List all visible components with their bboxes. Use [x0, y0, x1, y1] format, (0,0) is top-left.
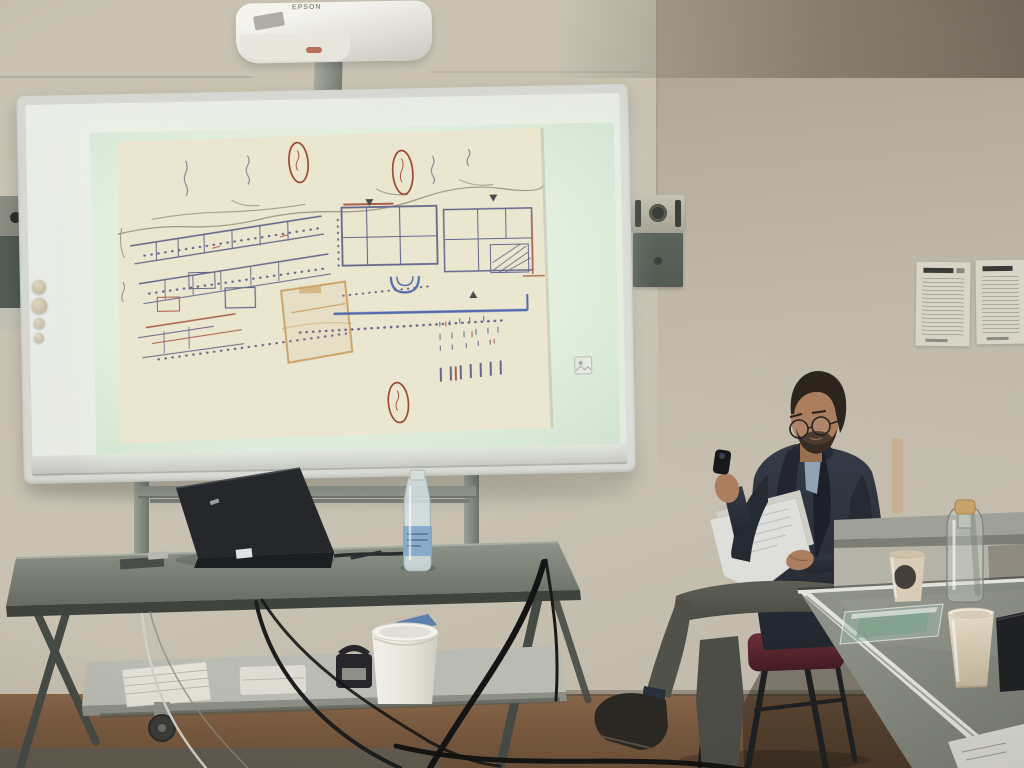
case-top-edge — [996, 614, 1024, 620]
green-sheet — [856, 610, 930, 638]
mobile-whiteboard — [16, 84, 636, 484]
table-sheen — [840, 590, 1024, 660]
laptop-cable — [334, 552, 420, 556]
board-stand-pole — [134, 468, 149, 570]
notice-header-bar — [982, 266, 1012, 271]
projector-brand-label: EPSON — [292, 4, 322, 12]
pen — [352, 552, 380, 558]
seminar-room-photo: EPSON — [0, 0, 1024, 768]
hole-punch — [336, 648, 372, 688]
folder-white-sheet — [851, 607, 938, 619]
notice-footer — [986, 337, 1008, 340]
projector-front — [240, 34, 350, 61]
dark-case — [996, 612, 1024, 692]
laptop-shadow — [175, 552, 335, 568]
floor-shadow-strip — [0, 748, 440, 768]
bucket-handle — [374, 638, 436, 645]
wall-rail — [430, 71, 642, 73]
board-stand-pole — [464, 466, 479, 564]
speaker-slot — [675, 200, 681, 227]
notice-footer — [925, 339, 947, 342]
notice-text-lines — [922, 278, 965, 337]
notice-header-logo — [956, 268, 964, 273]
laptop-base — [194, 552, 334, 568]
board-stand-crossbar — [138, 486, 476, 498]
laptop-sticker — [236, 548, 253, 559]
speaker-mount-circle — [649, 204, 667, 222]
projected-slide — [90, 122, 620, 454]
wall-notice-sheet — [915, 262, 970, 347]
speaker-grommet — [654, 257, 662, 265]
plan-orange-forum — [281, 281, 353, 362]
transparent-folder — [840, 604, 943, 644]
tabletop-front-edge — [6, 590, 581, 617]
wall-speaker — [631, 195, 685, 289]
projector-logo-mark — [306, 47, 322, 53]
notice-text-lines — [982, 276, 1020, 335]
cable — [546, 560, 557, 700]
wall-notice-sheet — [975, 260, 1024, 345]
box-seam — [242, 678, 304, 680]
chair-seat — [747, 630, 844, 671]
presenter-shin — [646, 598, 692, 698]
trolley-tabletop — [6, 542, 580, 606]
speaker-slot — [635, 200, 641, 227]
blue-gloves — [396, 614, 437, 631]
baseboard — [420, 690, 1024, 696]
paper-cup — [948, 608, 994, 687]
broken-image-icon — [575, 357, 592, 374]
notice-header-bar — [923, 268, 953, 273]
white-box — [240, 665, 307, 695]
bottle-label — [403, 526, 432, 556]
wall-rail — [0, 76, 252, 78]
board-stand-crossbar — [150, 499, 470, 503]
